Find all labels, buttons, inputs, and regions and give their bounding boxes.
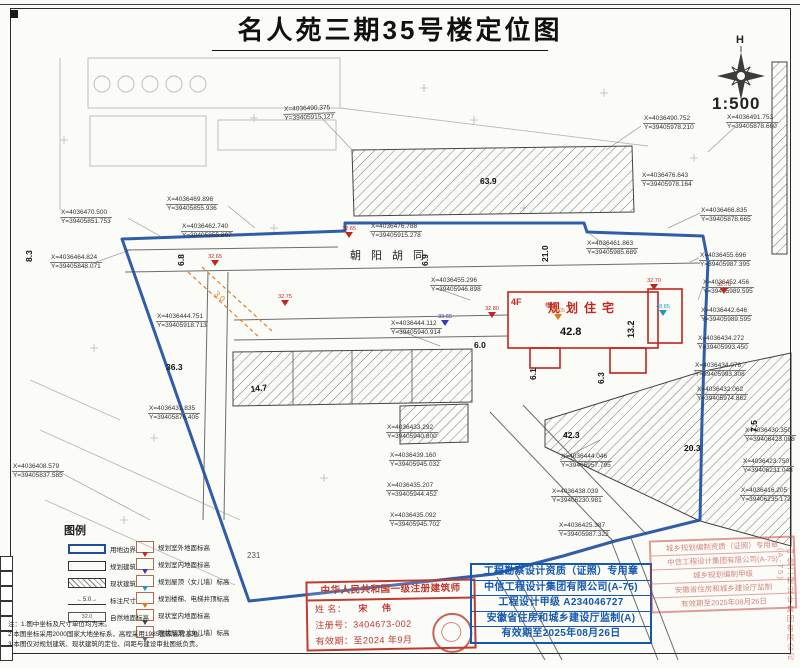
existing-building-symbol	[68, 578, 106, 588]
elevation-marker: 32.65	[338, 226, 360, 238]
coord-label: X=4036433.292 Y=39405940.800	[386, 424, 438, 441]
dimension-label: 8.3	[24, 250, 34, 262]
elevation-symbol	[136, 592, 154, 604]
note-line: 2.本图坐标采用2000国家大地坐标系，高程采用1985国家高程基准。	[8, 630, 308, 640]
elevation-marker: 38.05	[547, 308, 569, 320]
dimension-label: 14.7	[250, 382, 268, 394]
elevation-marker: 32.75	[274, 294, 296, 306]
building-width: 42.8	[560, 326, 581, 338]
coord-label: X=4036439.160 Y=39405945.032	[389, 452, 441, 469]
elevation-symbol	[136, 609, 154, 621]
dimension-label: 63.9	[480, 176, 497, 186]
dimension-label: 42.3	[563, 430, 580, 440]
coord-label: X=4036470.500 Y=39405851.753	[60, 209, 112, 226]
legend-item-elevation: 规划室内地面标高	[136, 555, 306, 572]
dimension-symbol: ←5.0→	[68, 595, 106, 605]
triangle-icon	[142, 586, 148, 591]
coord-label: X=4036416.205 Y=39406235.172	[740, 487, 792, 504]
elevation-symbol	[136, 541, 154, 553]
page-title: 名人苑三期35号楼定位图	[0, 10, 800, 47]
legend-item-elevation: 规划楼梯、电梯井顶标高	[136, 589, 306, 606]
dimension-label: 6.0	[474, 340, 486, 350]
coord-label: X=4036491.753 Y=39405878.660	[726, 114, 778, 131]
coord-label: X=4036425.387 Y=39405987.322	[558, 522, 610, 539]
coord-label: X=4036442.646 Y=39405989.595	[700, 307, 752, 324]
coord-label: X=4036434.076 Y=39405993.308	[694, 362, 746, 379]
dimension-label: 20.3	[684, 443, 701, 453]
dimension-label: 6.3	[596, 372, 606, 384]
coord-label: X=4036432.062 Y=39405974.862	[696, 386, 748, 403]
coord-label: X=4036435.092 Y=39405945.702	[389, 512, 441, 529]
edge-strip-box	[0, 601, 13, 616]
note-line: 注：1.图中坐标及尺寸单位均为米。	[8, 620, 308, 630]
triangle-icon	[650, 284, 658, 290]
coord-label: X=4036476.788 Y=39405915.278	[370, 223, 422, 240]
elevation-marker: 33.65	[434, 314, 456, 326]
triangle-icon	[441, 320, 449, 326]
triangle-icon	[142, 603, 148, 608]
sheet-side-text: 中信工程设计集团有限公司(A-75)	[776, 548, 796, 668]
edge-strip-box	[0, 556, 13, 571]
coord-label: X=4036490.752 Y=39405978.210	[643, 115, 695, 132]
legend-item-elevation: 规划室外地面标高	[136, 538, 306, 555]
coord-label: X=4036461.863 Y=39405985.689	[586, 240, 638, 257]
elevation-marker: 32.70	[643, 278, 665, 290]
coord-label: X=4036435.207 Y=39405944.452	[386, 482, 438, 499]
dimension-label: 21.0	[540, 245, 550, 262]
edge-strip-box	[0, 571, 13, 586]
coord-label: X=4036490.375 Y=39405915.127	[283, 104, 335, 123]
triangle-icon	[720, 288, 728, 294]
coord-label: X=4036476.643 Y=39405978.164	[641, 172, 693, 189]
dimension-label: 6.9	[420, 254, 430, 266]
coord-label: X=4036438.039 Y=39406230.981	[551, 488, 603, 505]
title-underline	[212, 50, 548, 51]
drawing-notes: 注：1.图中坐标及尺寸单位均为米。2.本图坐标采用2000国家大地坐标系，高程采…	[8, 620, 308, 650]
coord-label: X=4036464.824 Y=39405848.071	[50, 254, 102, 271]
coord-label: X=4036466.835 Y=39405878.665	[700, 207, 752, 224]
coord-label: X=4036455.296 Y=39405946.898	[430, 277, 482, 294]
note-line: 3.本图仅对规划建筑、现状建筑的定位、间距与建设审批图纸负责。	[8, 640, 308, 650]
architect-valid: 至2024 年9月	[353, 635, 412, 646]
dimension-label: 7.5	[749, 420, 759, 432]
coord-label: X=4036423.750 Y=39406231.048	[742, 458, 794, 475]
north-label: H	[736, 34, 744, 46]
triangle-icon	[142, 552, 148, 557]
elevation-marker: 32.70	[713, 282, 735, 294]
elevation-symbol	[136, 558, 154, 570]
triangle-icon	[142, 569, 148, 574]
qualification-stamp-blue: 工程勘察设计资质（证照）专用章 中信工程设计集团有限公司(A-75) 工程设计甲…	[470, 563, 652, 644]
sheet-top-line	[0, 4, 800, 5]
round-seal-icon	[432, 613, 473, 654]
boundary-symbol	[68, 544, 106, 554]
edge-strip-box	[0, 586, 13, 601]
legend-title: 图例	[64, 522, 86, 538]
dimension-label: 6.1	[528, 368, 538, 380]
elevation-marker: 48.85	[652, 304, 674, 316]
coord-label: X=4036469.896 Y=39405855.936	[166, 196, 218, 213]
elevation-marker: 32.65	[204, 254, 226, 266]
coord-label: X=4036455.696 Y=39405987.395	[699, 252, 751, 269]
legend-item-elevation: 规划屋顶（女儿墙）标高	[136, 572, 306, 589]
elevation-symbol	[136, 575, 154, 587]
architect-name: 宋 伟	[358, 603, 397, 614]
planned-building-symbol	[68, 561, 106, 571]
architect-no: 3404673-002	[353, 619, 412, 630]
building-depth: 13.2	[626, 320, 636, 338]
dimension-label: 36.3	[166, 362, 183, 372]
architect-stamp: 中华人民共和国一级注册建筑师 姓 名：宋 伟 注册号：3404673-002 有…	[305, 579, 476, 652]
coord-label: X=4036444.751 Y=39405918.713	[156, 313, 208, 330]
triangle-icon	[554, 314, 562, 320]
dimension-label: 6.8	[176, 254, 186, 266]
triangle-icon	[345, 232, 353, 238]
coord-label: X=4036462.740 Y=39405855.897	[181, 223, 233, 240]
coord-label: X=4036434.272 Y=39405993.450	[697, 335, 749, 352]
elevation-marker: 32.80	[481, 306, 503, 318]
coord-label: X=4036431.835 Y=39405876.405	[148, 405, 200, 422]
planning-stamp-red: 城乡规划编制资质（证照）专用章 中信工程设计集团有限公司(A-75) 城乡规划编…	[649, 535, 797, 613]
triangle-icon	[488, 312, 496, 318]
triangle-icon	[659, 310, 667, 316]
site-plan-sheet: 名人苑三期35号楼定位图 H 1:500 朝阳胡同 4F 楼梯 规划住宅 42.…	[0, 0, 800, 668]
triangle-icon	[281, 300, 289, 306]
triangle-icon	[211, 260, 219, 266]
coord-label: X=4036408.579 Y=39405837.585	[12, 463, 64, 480]
scale-label: 1:500	[712, 94, 760, 114]
coord-label: X=4036444.046 Y=39405957.795	[560, 453, 612, 470]
building-floors: 4F	[511, 297, 522, 307]
